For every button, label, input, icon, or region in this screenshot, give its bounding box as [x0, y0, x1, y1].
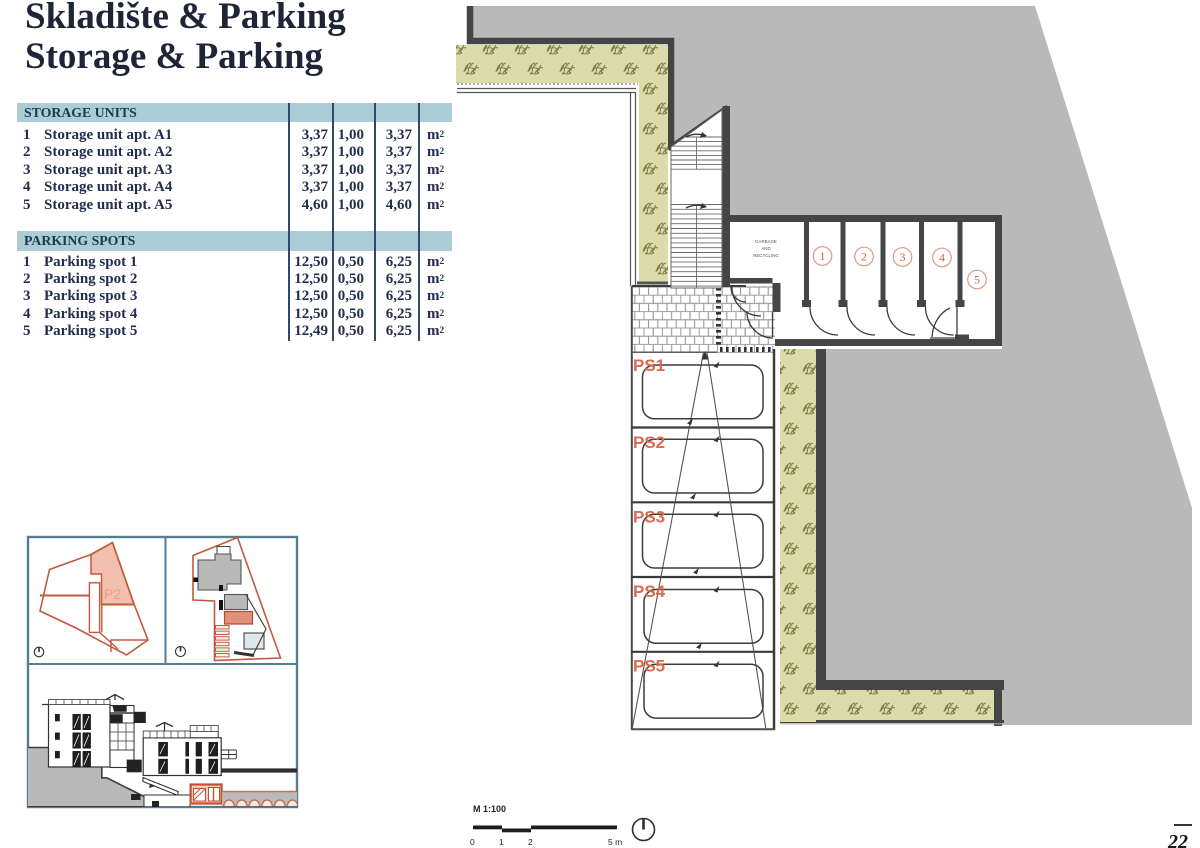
svg-text:AND: AND — [761, 246, 770, 251]
svg-text:5 m: 5 m — [608, 837, 622, 847]
svg-text:2: 2 — [528, 837, 533, 847]
svg-text:PS3: PS3 — [633, 508, 665, 527]
svg-text:3: 3 — [900, 250, 906, 264]
svg-text:PS2: PS2 — [633, 433, 665, 452]
svg-text:P2: P2 — [104, 586, 121, 602]
svg-text:PS5: PS5 — [633, 657, 665, 676]
svg-text:5: 5 — [974, 273, 980, 287]
svg-text:1: 1 — [820, 249, 826, 263]
svg-text:PS1: PS1 — [633, 356, 665, 375]
svg-text:PS4: PS4 — [633, 582, 666, 601]
svg-text:1: 1 — [499, 837, 504, 847]
svg-text:RECYCLING: RECYCLING — [753, 253, 779, 258]
svg-text:4: 4 — [939, 251, 945, 265]
svg-text:0: 0 — [470, 837, 475, 847]
svg-text:2: 2 — [861, 250, 867, 264]
svg-text:M 1:100: M 1:100 — [473, 804, 506, 814]
svg-text:GARBAGE: GARBAGE — [755, 239, 777, 244]
